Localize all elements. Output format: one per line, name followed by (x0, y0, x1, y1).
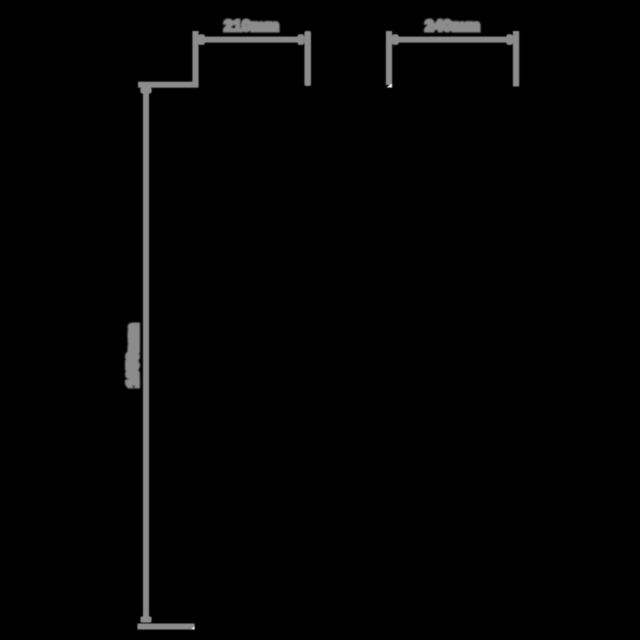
svg-text:240mm: 240mm (425, 18, 480, 35)
svg-text:210mm: 210mm (224, 18, 279, 35)
svg-text:1050mm: 1050mm (125, 323, 142, 387)
